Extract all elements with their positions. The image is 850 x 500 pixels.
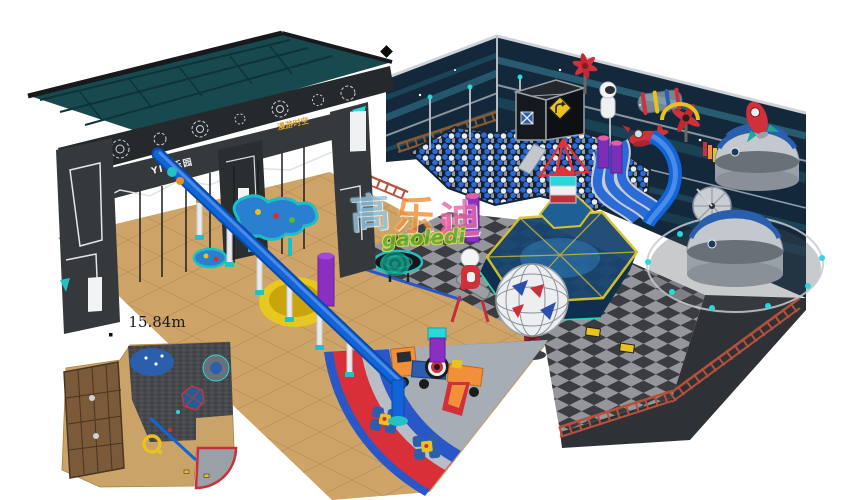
gate-pillar-left	[56, 138, 120, 334]
astronaut-figure-white	[600, 82, 616, 118]
diamond-mark	[380, 45, 393, 58]
round-play-table	[194, 249, 226, 267]
purple-column-a	[466, 193, 479, 242]
foam-block-purple	[430, 338, 445, 362]
pink-robot-figure	[441, 215, 453, 241]
dim-tick-a	[109, 333, 113, 337]
purple-column-left	[318, 253, 334, 307]
playground-render: YIQ乐园 漫游时空	[0, 0, 850, 500]
plan-ballpit	[130, 348, 174, 376]
plan-trampoline-grid	[64, 362, 124, 478]
dimension-label: 15.84m	[128, 313, 185, 331]
render-canvas: YIQ乐园 漫游时空	[0, 0, 850, 500]
plan-fan-zone	[196, 448, 236, 488]
